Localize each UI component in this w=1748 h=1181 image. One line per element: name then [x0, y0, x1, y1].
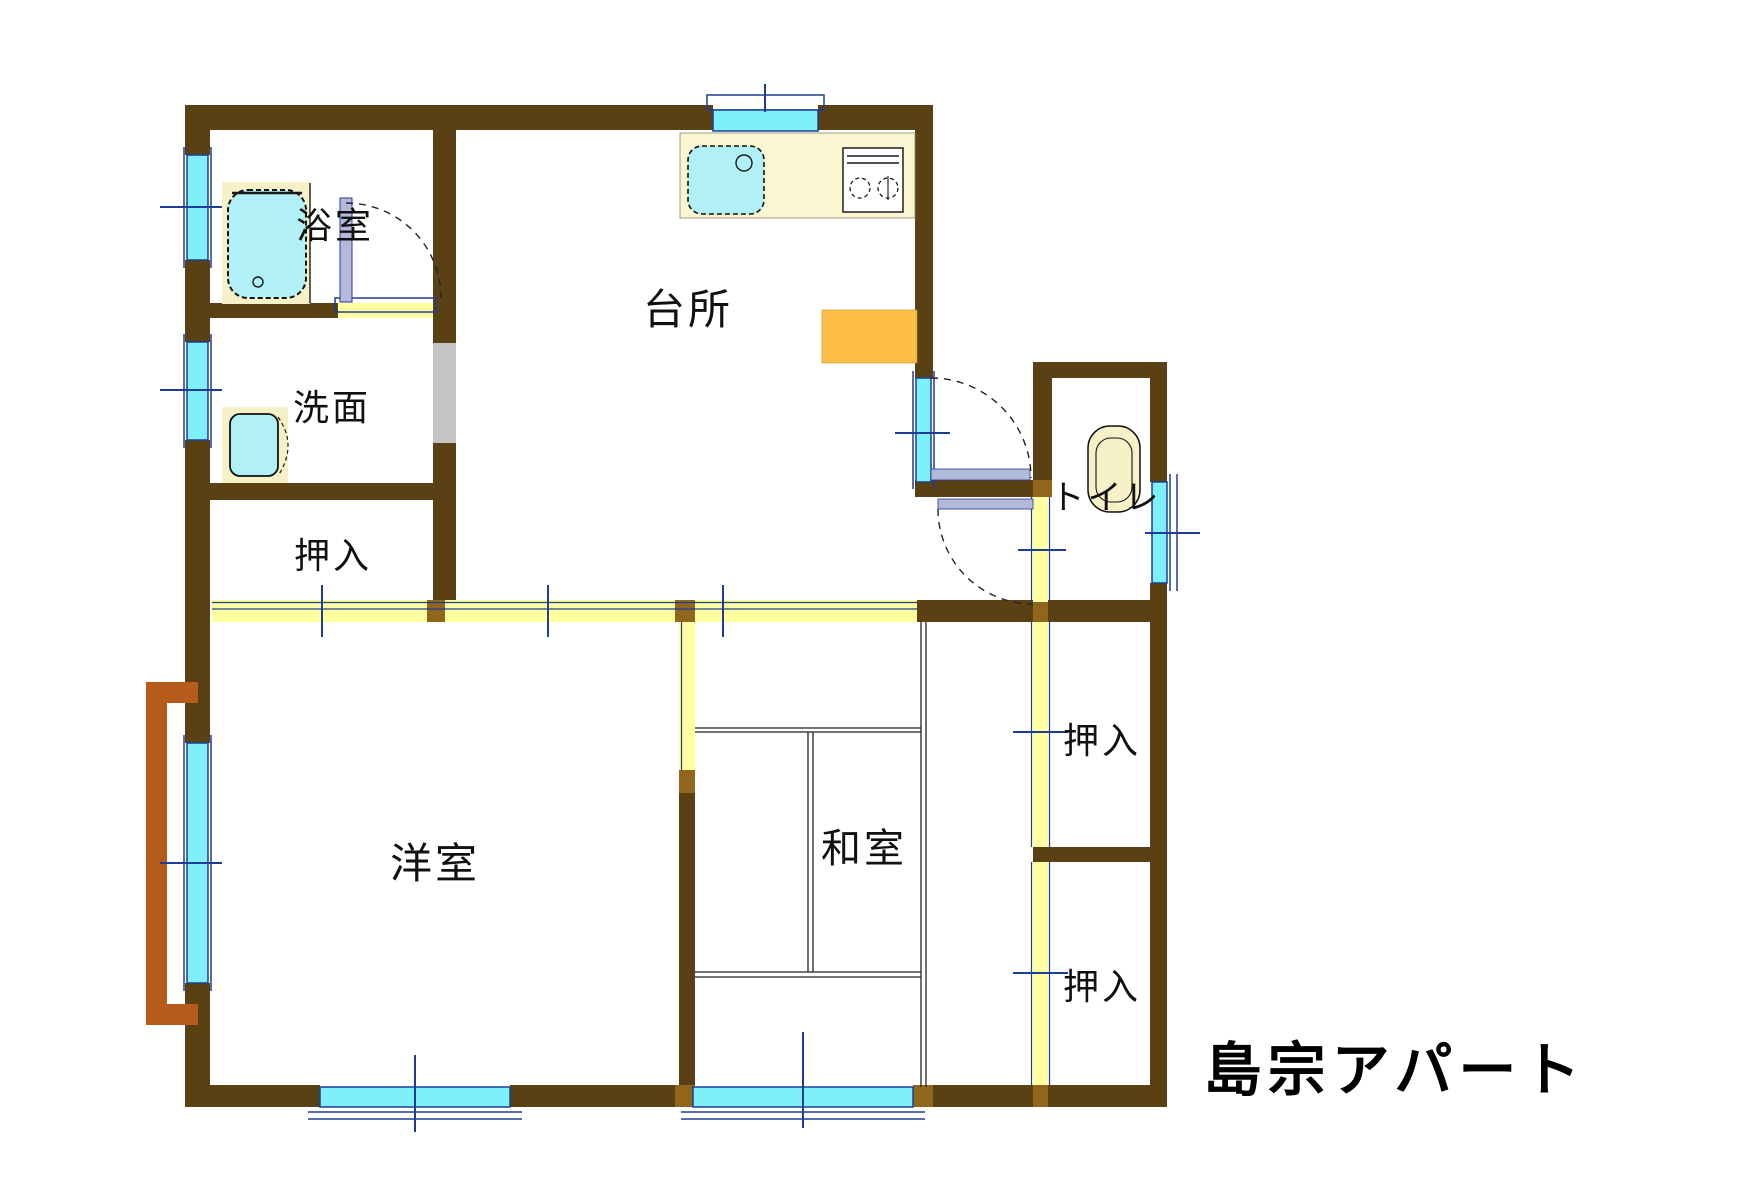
- label-washroom: 洗面: [293, 388, 371, 428]
- entrance-door: [916, 378, 931, 482]
- wall-joint-bottom-3: [1033, 1085, 1048, 1107]
- wall-mid-joint: [1033, 600, 1048, 622]
- plan-title: 島宗アパート: [1204, 1038, 1587, 1103]
- label-closet-top-left: 押入: [294, 536, 372, 576]
- kitchen-window: [713, 110, 818, 131]
- wall-gray-panel: [433, 343, 456, 443]
- label-closet-upper-right: 押入: [1063, 721, 1141, 761]
- label-western-room: 洋室: [390, 841, 480, 888]
- wall-closets-divider: [1033, 847, 1167, 862]
- wall-mid-post-1: [427, 600, 445, 622]
- wall-left-1: [185, 105, 210, 155]
- wash-basin: [230, 414, 278, 476]
- wall-joint-genkan: [1033, 480, 1052, 497]
- wall-kitchen-right: [915, 130, 933, 378]
- wall-mid-post-2: [675, 600, 695, 622]
- balcony-side-bar: [146, 682, 167, 1025]
- balcony-bottom-bar: [146, 1004, 198, 1025]
- kitchen-west-fusuma: [445, 600, 675, 622]
- wall-top-right: [818, 105, 933, 130]
- stove: [843, 148, 903, 212]
- wall-genkan-bottom: [915, 480, 1033, 497]
- wall-bottom-middle: [510, 1085, 693, 1107]
- kitchen-sink: [688, 146, 764, 214]
- wall-joint-bottom-2: [913, 1085, 933, 1107]
- wall-joint-bottom-1: [675, 1085, 695, 1107]
- label-closet-lower-right: 押入: [1063, 967, 1141, 1007]
- label-toilet: トイレ: [1051, 480, 1162, 517]
- bath-door-threshold: [338, 303, 433, 318]
- label-japanese-room: 和室: [821, 826, 907, 871]
- wall-mid-right-b: [1048, 600, 1167, 622]
- closet-top-left-fusuma: [212, 600, 427, 622]
- hall-door-sill: [938, 499, 1033, 509]
- wall-right-upper: [1150, 362, 1167, 482]
- floor-plan-drawing: 浴室 洗面 押入 台所 トイレ 洋室 和室 押入 押入 島宗アパート: [0, 0, 1748, 1181]
- wall-partition: [679, 793, 695, 1087]
- room-labels: 浴室 洗面 押入 台所 トイレ 洋室 和室 押入 押入 島宗アパート: [293, 206, 1586, 1103]
- wall-wash-closet-divider: [210, 483, 433, 500]
- wall-right-lower: [1150, 583, 1167, 1107]
- refrigerator-space: [822, 310, 917, 363]
- wall-partition-joint: [679, 770, 695, 793]
- wall-bottom-left: [185, 1085, 320, 1107]
- wall-toilet-top: [1033, 362, 1167, 378]
- kitchen-japanese-fusuma: [695, 600, 917, 622]
- wall-toilet-left: [1033, 378, 1052, 480]
- bathtub: [228, 190, 306, 298]
- floor-plan-page: 浴室 洗面 押入 台所 トイレ 洋室 和室 押入 押入 島宗アパート: [0, 0, 1748, 1181]
- genkan-step: [931, 469, 1030, 480]
- label-bath: 浴室: [296, 206, 374, 246]
- hall-door-arc: [938, 509, 1033, 604]
- closet-upper-right-fusuma: [1033, 622, 1048, 847]
- label-kitchen: 台所: [643, 288, 733, 334]
- wall-left-2: [185, 260, 210, 342]
- wall-column-right-lower: [433, 443, 456, 600]
- wall-top-left: [185, 105, 713, 130]
- entrance-door-arc: [931, 378, 1031, 478]
- wall-mid-right-a: [917, 600, 1033, 622]
- wall-left-4: [185, 983, 210, 1087]
- wall-bath-wash-divider: [210, 303, 338, 318]
